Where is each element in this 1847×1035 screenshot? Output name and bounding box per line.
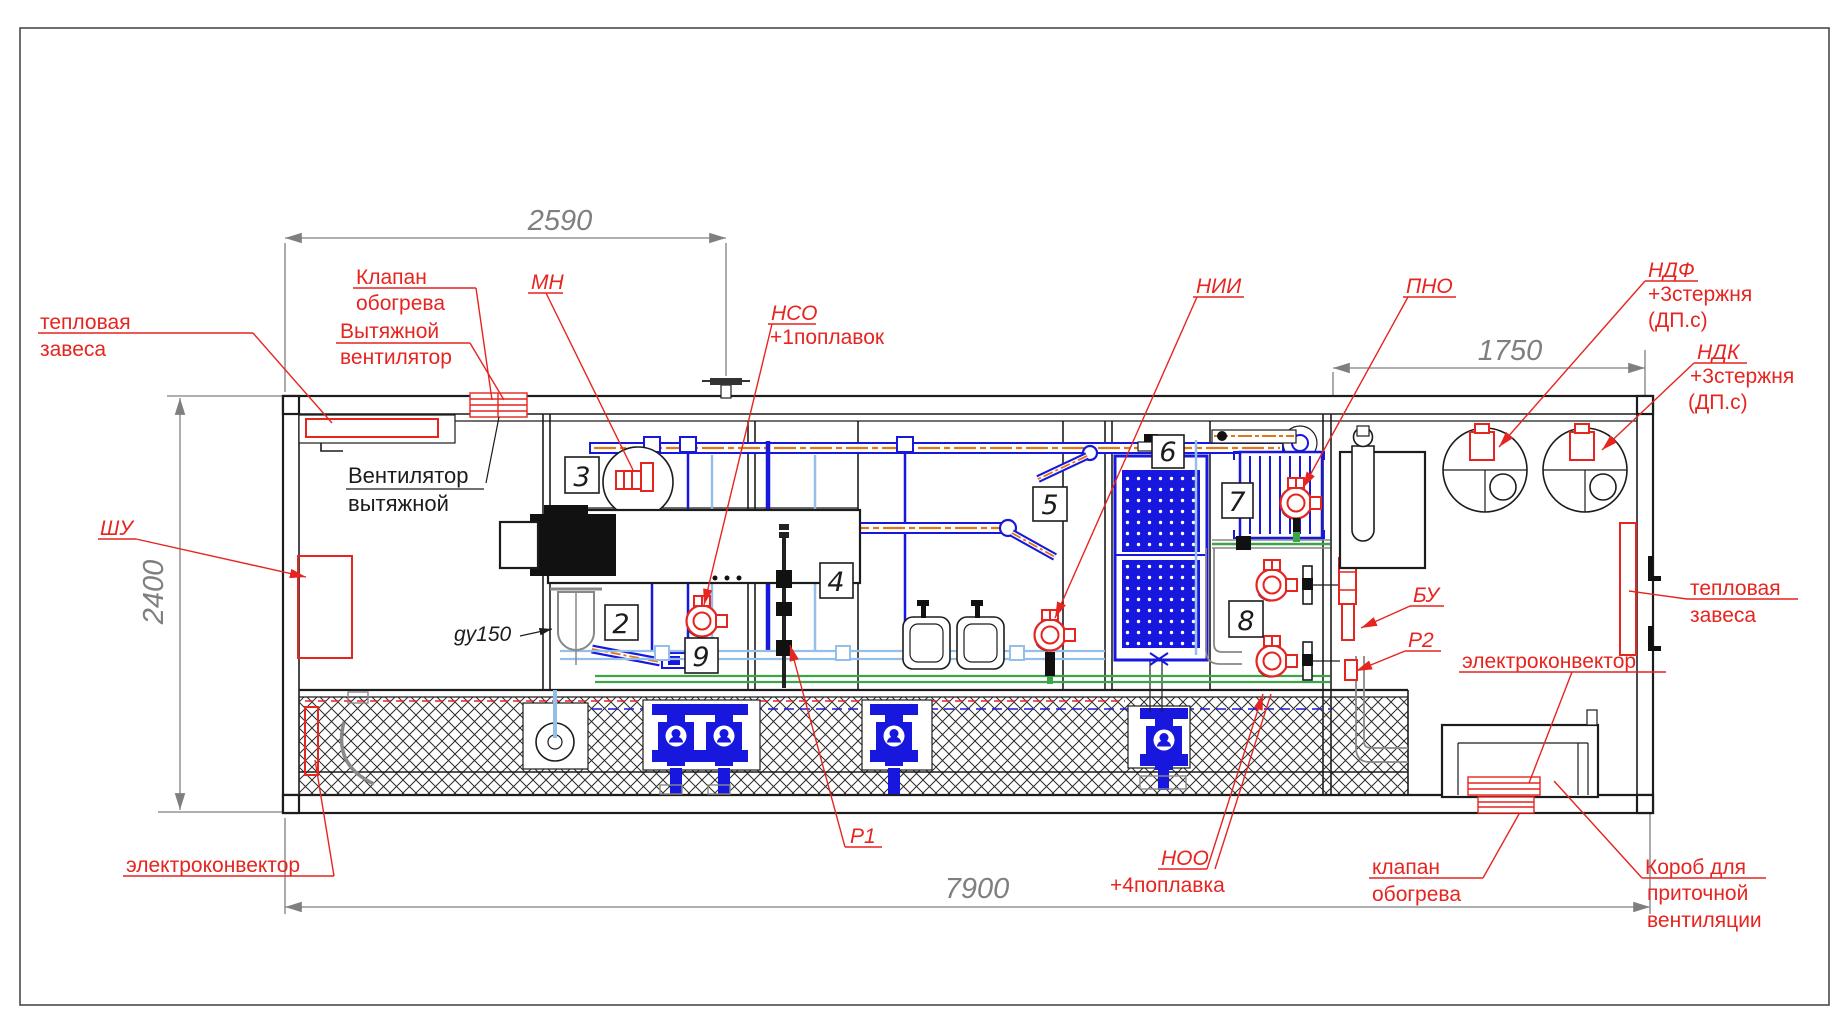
ndf-sensor xyxy=(1470,432,1494,460)
number-box-3: 3 xyxy=(565,457,599,493)
label-nso-float: +1поплавок xyxy=(770,326,885,349)
blower-unit xyxy=(500,505,860,583)
label-pno: ПНО xyxy=(1406,275,1453,298)
label-p2: Р2 xyxy=(1408,629,1434,652)
number-box-2: 2 xyxy=(605,605,638,640)
drawing-page: 2590 2400 1750 7900 xyxy=(0,0,1847,1035)
number-box-8: 8 xyxy=(1229,601,1263,637)
label-ndf-rods: +3стержня xyxy=(1648,283,1752,306)
drawing-canvas: 2590 2400 1750 7900 xyxy=(0,0,1847,1035)
intake-duct xyxy=(1442,710,1598,813)
label-thermal-curtain-right-2: завеса xyxy=(1690,604,1756,627)
label-ndk-rods: +3стержня xyxy=(1690,365,1794,388)
label-shu: ШУ xyxy=(100,517,135,540)
number-box-5: 5 xyxy=(1033,487,1067,521)
label-fan-black-1: Вентилятор xyxy=(348,463,468,488)
svg-text:9: 9 xyxy=(692,642,709,673)
label-bu: БУ xyxy=(1413,584,1441,607)
ndk-sensor xyxy=(1570,432,1594,460)
dim-1750-text: 1750 xyxy=(1478,335,1543,367)
submersible-pump-2 xyxy=(700,704,748,766)
svg-text:3: 3 xyxy=(573,462,590,493)
label-thermal-curtain-left-2: завеса xyxy=(40,338,106,361)
number-box-4: 4 xyxy=(820,563,853,598)
number-box-7: 7 xyxy=(1222,483,1253,518)
pump-nii-stem xyxy=(1045,652,1055,676)
label-heating-valve-top-2: обогрева xyxy=(356,292,445,315)
svg-text:6: 6 xyxy=(1159,437,1176,468)
label-thermal-curtain-left-1: тепловая xyxy=(40,311,131,334)
label-intake-duct-3: вентиляции xyxy=(1647,909,1762,932)
number-box-9: 9 xyxy=(685,638,718,673)
expansion-vessel xyxy=(1352,446,1374,541)
label-ndf: НДФ xyxy=(1648,259,1695,282)
label-ndf-dps: (ДП.с) xyxy=(1648,309,1708,332)
label-fan-black-2: вытяжной xyxy=(348,491,449,516)
label-electroconvector-right: электроконвектор xyxy=(1462,650,1636,673)
label-intake-duct-1: Короб для xyxy=(1645,856,1746,879)
label-heating-valve-bottom-1: клапан xyxy=(1372,856,1440,879)
roof-heating-valve xyxy=(470,393,527,417)
svg-text:7: 7 xyxy=(1228,487,1245,518)
dim-2590-text: 2590 xyxy=(527,205,593,237)
label-thermal-curtain-right-1: тепловая xyxy=(1690,577,1781,600)
label-electroconvector-left: электроконвектор xyxy=(126,854,300,877)
label-ndk: НДК xyxy=(1697,341,1741,364)
submersible-pump-3 xyxy=(870,704,918,766)
dim-2400-text: 2400 xyxy=(138,560,170,626)
svg-text:2: 2 xyxy=(612,609,629,640)
p2-unit xyxy=(1345,660,1357,680)
label-exhaust-fan-red-2: вентилятор xyxy=(340,346,452,369)
svg-text:5: 5 xyxy=(1041,490,1058,521)
label-noo-floats: +4поплавка xyxy=(1110,874,1225,897)
label-ndk-dps: (ДП.с) xyxy=(1688,391,1748,414)
label-noo: НОО xyxy=(1161,847,1209,870)
label-nii: НИИ xyxy=(1196,275,1242,298)
label-p1: Р1 xyxy=(850,825,876,848)
label-gy150: gy150 xyxy=(454,623,512,646)
label-intake-duct-2: приточной xyxy=(1647,882,1748,905)
submersible-pump-1 xyxy=(652,704,700,766)
label-nso: НСО xyxy=(771,302,817,325)
label-heating-valve-bottom-2: обогрева xyxy=(1372,883,1461,906)
number-box-6: 6 xyxy=(1152,435,1184,468)
submersible-pump-4 xyxy=(1140,708,1188,770)
label-heating-valve-top-1: Клапан xyxy=(356,266,427,289)
svg-text:8: 8 xyxy=(1237,606,1254,637)
label-mn: МН xyxy=(531,271,564,294)
dim-7900-text: 7900 xyxy=(945,873,1010,905)
label-exhaust-fan-red-1: Вытяжной xyxy=(340,320,439,343)
svg-text:4: 4 xyxy=(827,567,844,598)
